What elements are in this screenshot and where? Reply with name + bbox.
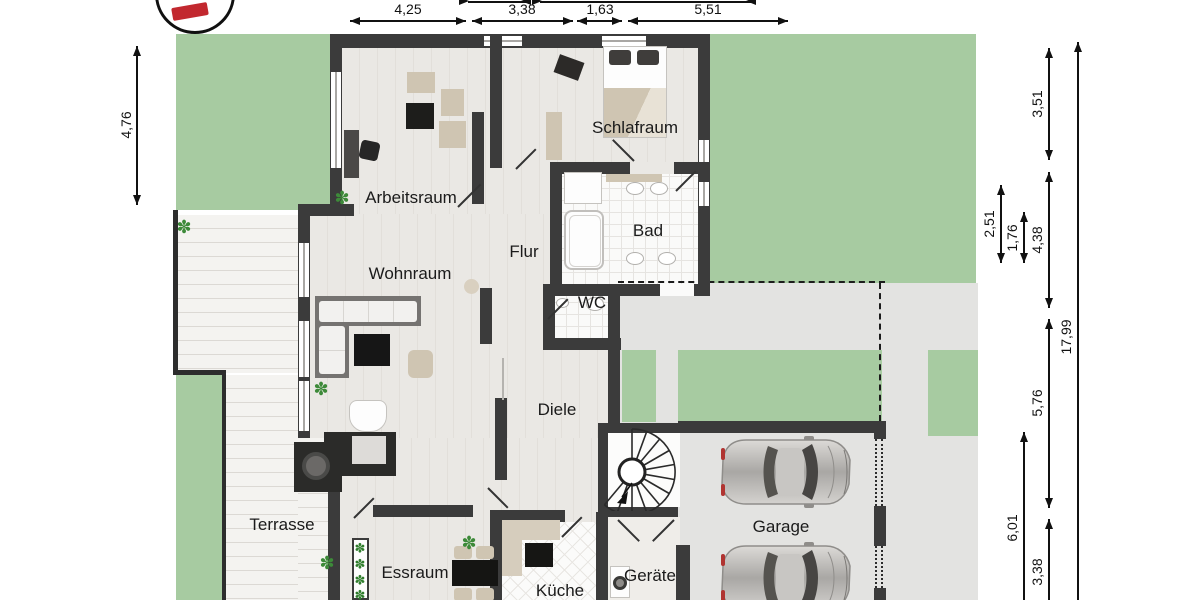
workstation-printer <box>352 436 386 464</box>
dining-table <box>452 560 498 586</box>
dim-line-1799 <box>1077 42 1079 600</box>
dim-label-601: 6,01 <box>1004 514 1020 541</box>
dim-arrow <box>997 253 1005 263</box>
dim-arrow <box>1045 319 1053 329</box>
chair-beige-3 <box>439 121 466 148</box>
dim-arrow <box>1045 498 1053 508</box>
window-west-upper <box>331 72 341 168</box>
dim-arrow <box>778 17 788 25</box>
dim-label-top-1: 4,25 <box>394 1 421 17</box>
lawn-top-left <box>176 34 330 210</box>
garage-post-2 <box>874 506 886 546</box>
room-label-kueche: Küche <box>536 581 584 600</box>
room-label-wohnraum: Wohnraum <box>369 264 452 284</box>
terrace-edge-south <box>173 370 226 375</box>
pouf-living <box>464 279 479 294</box>
plant-icon: ✽ <box>313 380 328 398</box>
dim-arrow <box>563 17 573 25</box>
hairline-shelf <box>502 358 504 400</box>
sink-bath-1 <box>626 182 644 195</box>
door-gap-bath <box>660 284 694 296</box>
terrace-door-glass <box>299 381 309 431</box>
bed-pillow-2 <box>637 50 659 65</box>
plant-icon: ✽ <box>334 189 349 207</box>
dim-line-251 <box>1000 185 1002 263</box>
dim-line-top-4 <box>628 20 788 22</box>
door-gap-bedroom <box>630 162 674 174</box>
lawn-top-right <box>710 34 976 283</box>
sofa-cushion-top <box>319 301 417 322</box>
dining-chair-3 <box>454 588 472 600</box>
dim-label-438: 4,38 <box>1029 226 1045 253</box>
overhang-dashed-line-v <box>879 283 881 421</box>
dim-arrow <box>459 0 469 5</box>
plant-icon: ✽ <box>355 574 366 587</box>
bidet-bath <box>658 252 676 265</box>
dim-arrow <box>521 0 531 5</box>
armchair-living <box>408 350 433 378</box>
garage-door-2a <box>875 546 877 588</box>
wall-hall-bath <box>550 162 562 284</box>
dim-arrow <box>1020 212 1028 222</box>
dim-arrow <box>1045 48 1053 58</box>
room-label-wc: WC <box>578 293 606 313</box>
dim-arrow <box>456 17 466 25</box>
car-top-view-1 <box>716 436 854 508</box>
room-label-garage: Garage <box>753 517 810 537</box>
dim-label-251: 2,51 <box>981 210 997 237</box>
room-label-diele: Diele <box>538 400 577 420</box>
dim-arrow <box>577 17 587 25</box>
dining-chair-2 <box>476 546 494 559</box>
dim-label-1799: 17,99 <box>1058 319 1074 354</box>
dim-arrow <box>1074 42 1082 52</box>
dim-arrow <box>1045 172 1053 182</box>
bath-niche <box>606 174 662 182</box>
dim-label-338: 3,38 <box>1029 558 1045 585</box>
bathtub-inner <box>569 215 601 267</box>
plant-icon: ✽ <box>319 554 334 572</box>
dim-line-438 <box>1048 172 1050 308</box>
garage-door-1a <box>875 439 877 506</box>
cooktop <box>525 543 553 567</box>
plant-icon: ✽ <box>355 558 366 571</box>
room-label-terrasse: Terrasse <box>249 515 314 535</box>
kitchen-counter-left <box>502 520 522 576</box>
room-label-flur: Flur <box>509 242 538 262</box>
dim-arrow <box>133 46 141 56</box>
dining-chair-4 <box>476 588 494 600</box>
window-north-2 <box>602 36 646 46</box>
bed-pillow-1 <box>609 50 631 65</box>
room-label-geraete: Geräte <box>624 566 676 586</box>
dim-label-left: 4,76 <box>118 111 134 138</box>
chair-beige-2 <box>441 89 464 116</box>
dim-arrow <box>532 0 542 5</box>
dim-arrow <box>1045 519 1053 529</box>
room-label-arbeitsraum: Arbeitsraum <box>365 188 457 208</box>
terrace-deck-lower <box>226 375 300 600</box>
floor-plan: ✽ ✽ ✽ ✽ ✽ ✽ ✽ ✽ ✽ Arbeitsraum Schlafraum… <box>0 0 1200 600</box>
window-east-2 <box>699 182 709 206</box>
dim-line-cut-2 <box>540 1 752 3</box>
wall-dining-north <box>373 505 473 517</box>
dim-label-176: 1,76 <box>1004 224 1020 251</box>
wall-west-lower <box>328 490 340 600</box>
wall-bedroom-west <box>490 34 502 168</box>
terrace-deck-upper <box>178 215 300 373</box>
chair-desk-white <box>349 400 387 432</box>
logo-red-shape <box>171 2 209 21</box>
company-logo-icon <box>155 0 235 34</box>
dim-arrow <box>1020 253 1028 263</box>
dim-arrow <box>1020 432 1028 442</box>
terrace-edge-lower <box>222 375 226 600</box>
dim-label-351: 3,51 <box>1029 90 1045 117</box>
dim-line-338 <box>1048 519 1050 600</box>
chair-study <box>358 139 381 162</box>
dim-line-top-2 <box>472 20 573 22</box>
window-west-2 <box>299 321 309 377</box>
dim-arrow <box>628 17 638 25</box>
dim-line-601 <box>1023 432 1025 600</box>
overhang-dashed-line-h <box>618 281 885 283</box>
table-study <box>406 103 434 129</box>
sink-bath-2 <box>650 182 668 195</box>
dim-arrow <box>997 185 1005 195</box>
dim-arrow <box>472 17 482 25</box>
sofa-cushion-left <box>319 326 345 374</box>
dim-line-576 <box>1048 319 1050 508</box>
lawn-bottom-left <box>176 375 222 600</box>
plant-icon: ✽ <box>176 218 191 236</box>
dim-line-left <box>136 46 138 205</box>
rug-coffee-table <box>354 334 390 366</box>
window-west-1 <box>299 243 309 297</box>
lawn-strip-mid <box>678 350 882 424</box>
garage-post-3 <box>874 588 886 600</box>
room-label-bad: Bad <box>633 221 663 241</box>
room-label-schlafraum: Schlafraum <box>592 118 678 138</box>
dim-arrow <box>612 17 622 25</box>
plant-icon: ✽ <box>461 534 476 552</box>
wall-east-mid-2 <box>608 348 620 423</box>
dim-line-351 <box>1048 48 1050 160</box>
toilet-bath <box>626 252 644 265</box>
wall-garage-north <box>678 421 885 433</box>
wall-garage-west <box>678 545 690 600</box>
spiral-staircase <box>598 423 682 511</box>
room-label-essraum: Essraum <box>381 563 448 583</box>
wall-hall-stub <box>480 288 492 344</box>
plant-icon: ✽ <box>355 589 366 600</box>
dim-label-576: 5,76 <box>1029 389 1045 416</box>
dim-arrow <box>133 195 141 205</box>
grill-ring <box>302 452 330 480</box>
lawn-strip-left <box>622 350 656 422</box>
desk-study <box>344 130 359 178</box>
dim-arrow <box>1045 150 1053 160</box>
wall-kitchen-east <box>596 512 608 600</box>
lawn-patch-right <box>928 350 978 436</box>
shower <box>564 172 602 204</box>
wall-shelf-diele <box>495 398 507 480</box>
garage-door-1b <box>881 439 883 506</box>
garage-post-1 <box>874 421 886 439</box>
plant-icon: ✽ <box>355 542 366 555</box>
dim-arrow <box>1045 298 1053 308</box>
car-top-view-2 <box>716 542 854 600</box>
dresser-bedroom <box>546 112 562 160</box>
dim-arrow <box>746 0 756 5</box>
dim-line-top-1 <box>350 20 466 22</box>
chair-beige-1 <box>407 72 435 93</box>
garage-door-2b <box>881 546 883 588</box>
dim-arrow <box>350 17 360 25</box>
wall-east-mid-1 <box>608 296 620 348</box>
dim-label-top-4: 5,51 <box>694 1 721 17</box>
dim-label-top-3: 1,63 <box>586 1 613 17</box>
